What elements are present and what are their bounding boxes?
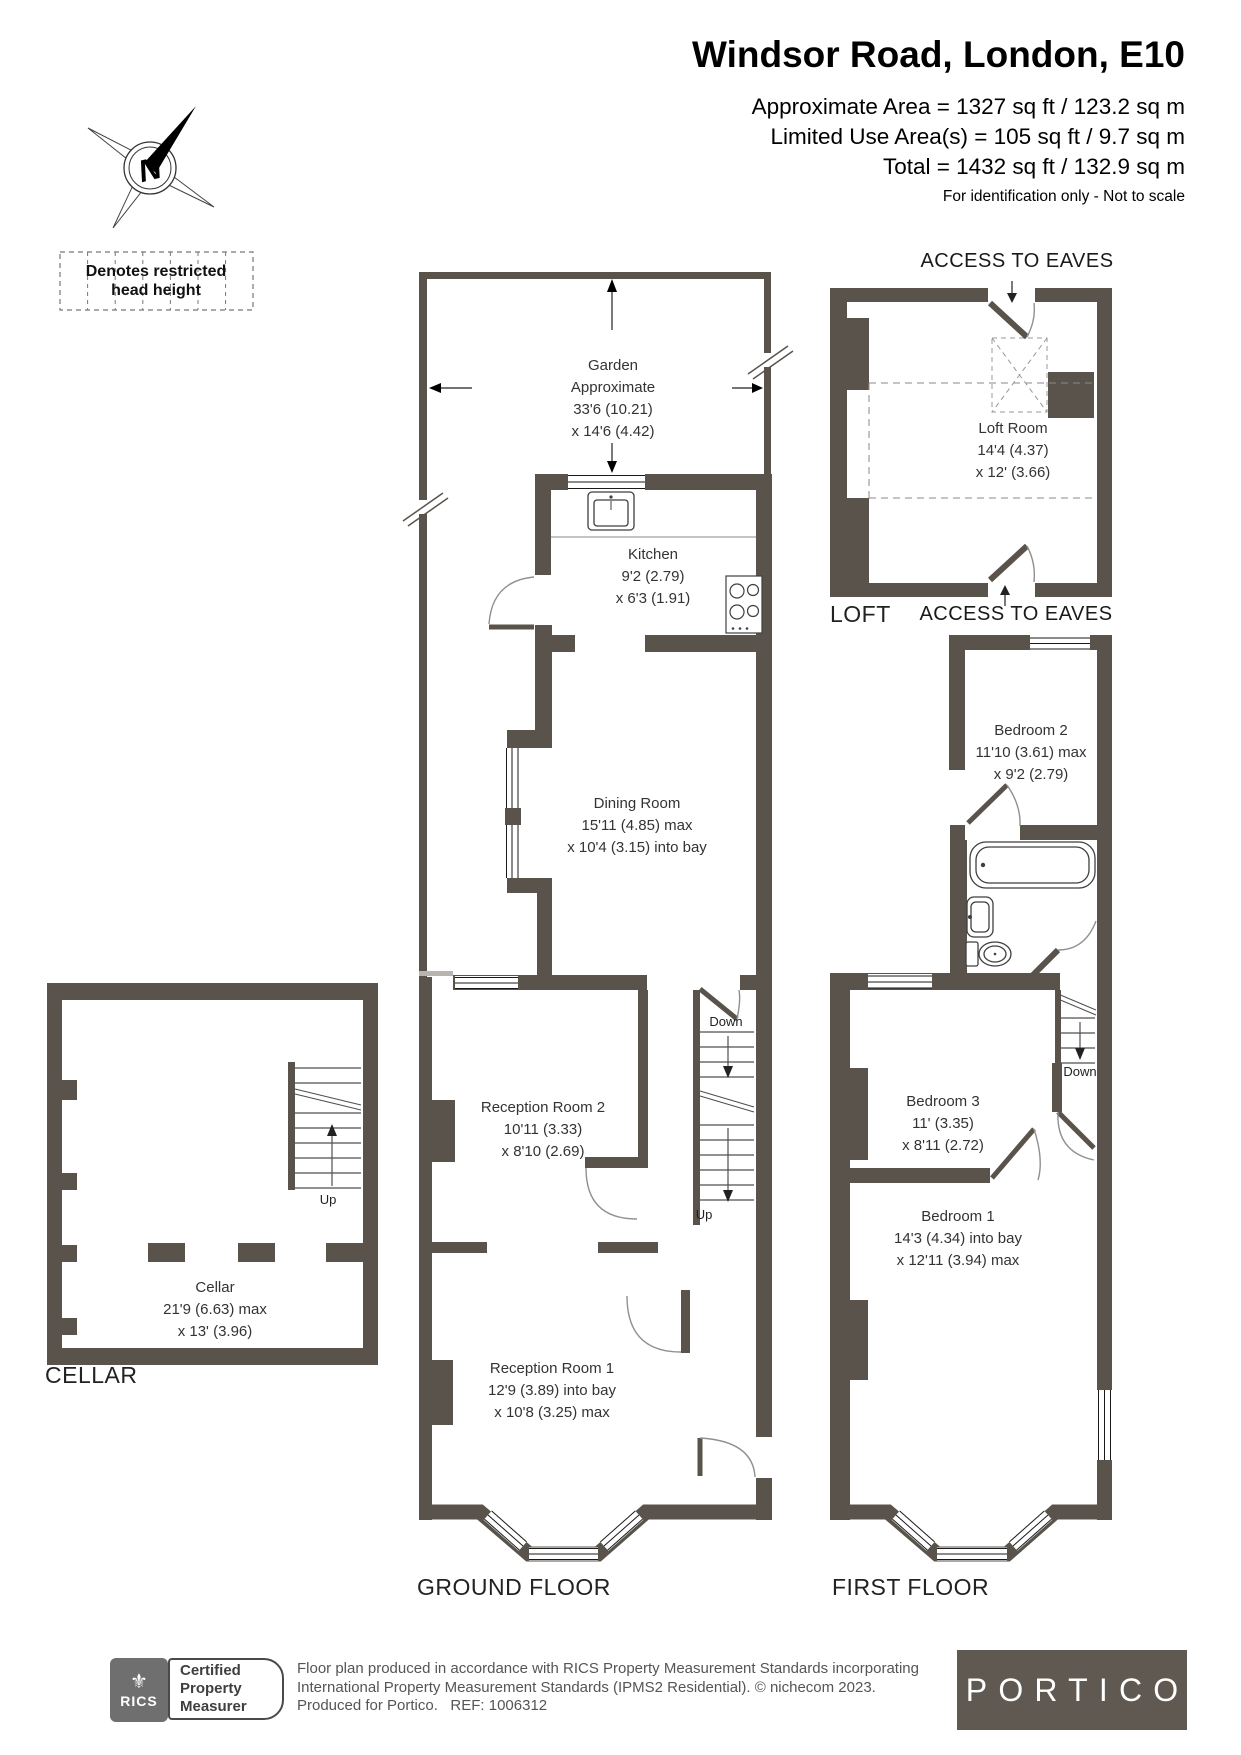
dining-name: Dining Room — [567, 793, 707, 815]
page-title: Windsor Road, London, E10 — [692, 34, 1185, 76]
legend-line-1: Denotes restricted — [86, 262, 227, 281]
reception1-dim-2: x 10'8 (3.25) max — [488, 1402, 616, 1424]
bedroom2-dim-2: x 9'2 (2.79) — [976, 764, 1087, 786]
bedroom3-window — [868, 974, 932, 988]
restricted-height-legend: Denotes restricted head height — [86, 262, 227, 300]
loft-eaves-door-bottom — [990, 546, 1034, 582]
cellar-stairs — [295, 1068, 361, 1188]
reception2-dim-2: x 8'10 (2.69) — [481, 1141, 605, 1163]
rics-logo: ⚜ RICS — [110, 1658, 168, 1722]
reception2-window — [455, 976, 518, 989]
front-door — [700, 1438, 755, 1477]
first-floor-label: FIRST FLOOR — [832, 1574, 989, 1601]
access-to-eaves-label-top: ACCESS TO EAVES — [920, 250, 1113, 273]
bedroom1-door — [1058, 1112, 1094, 1160]
loft-room-label: Loft Room 14'4 (4.37) x 12' (3.66) — [976, 418, 1051, 484]
garden-dim-1: 33'6 (10.21) — [571, 399, 655, 421]
reception1-door-arc — [627, 1296, 681, 1352]
loft-room-name: Loft Room — [976, 418, 1051, 440]
compass-icon: N — [88, 106, 214, 228]
portico-logo: PORTICO — [957, 1650, 1187, 1730]
bathtub-icon — [970, 842, 1095, 888]
disclaimer-text: Floor plan produced in accordance with R… — [297, 1660, 919, 1716]
cellar-pier — [238, 1243, 275, 1262]
ground-stairs-down-label: Down — [709, 1014, 742, 1029]
disclaimer-line-1: Floor plan produced in accordance with R… — [297, 1660, 919, 1679]
bedroom1-dim-1: 14'3 (4.34) into bay — [894, 1228, 1022, 1250]
dining-room-label: Dining Room 15'11 (4.85) max x 10'4 (3.1… — [567, 793, 707, 859]
cert-line-1: Certified — [180, 1662, 282, 1680]
kitchen-window — [568, 473, 645, 490]
first-stairs-down-label: Down — [1063, 1064, 1096, 1079]
garden-dim-2: x 14'6 (4.42) — [571, 421, 655, 443]
bedroom2-window — [1030, 636, 1090, 649]
approximate-area: Approximate Area = 1327 sq ft / 123.2 sq… — [752, 94, 1185, 120]
total-area: Total = 1432 sq ft / 132.9 sq m — [883, 154, 1185, 180]
ground-bay-windows — [484, 1511, 642, 1560]
garden-name: Garden — [571, 355, 655, 377]
reception2-door-arc — [586, 1168, 637, 1219]
kitchen-sink-icon — [588, 492, 634, 530]
kitchen-dim-1: 9'2 (2.79) — [616, 566, 691, 588]
cellar-stairs-up-label: Up — [320, 1192, 337, 1207]
kitchen-dim-2: x 6'3 (1.91) — [616, 588, 691, 610]
cellar-dim-2: x 13' (3.96) — [163, 1321, 267, 1343]
ground-stairs — [700, 1032, 754, 1200]
bedroom3-label: Bedroom 3 11' (3.35) x 8'11 (2.72) — [902, 1091, 984, 1157]
bedroom3-dim-1: 11' (3.35) — [902, 1113, 984, 1135]
reception2-label: Reception Room 2 10'11 (3.33) x 8'10 (2.… — [481, 1097, 605, 1163]
reception2-name: Reception Room 2 — [481, 1097, 605, 1119]
portico-wordmark: PORTICO — [955, 1672, 1190, 1709]
hob-icon — [726, 576, 762, 633]
reception1-dim-1: 12'9 (3.89) into bay — [488, 1380, 616, 1402]
certified-property-measurer-badge: Certified Property Measurer — [168, 1658, 284, 1720]
loft-hatch-box — [992, 338, 1047, 412]
dining-dim-1: 15'11 (4.85) max — [567, 815, 707, 837]
cellar-pier — [326, 1243, 363, 1262]
bedroom1-dim-2: x 12'11 (3.94) max — [894, 1250, 1022, 1272]
cellar-name: Cellar — [163, 1277, 267, 1299]
kitchen-label: Kitchen 9'2 (2.79) x 6'3 (1.91) — [616, 544, 691, 610]
legend-line-2: head height — [86, 281, 227, 300]
bedroom2-name: Bedroom 2 — [976, 720, 1087, 742]
loft-eaves-door-top — [990, 303, 1034, 337]
loft-plan — [830, 281, 1112, 606]
cellar-label: CELLAR — [45, 1362, 137, 1389]
garden-approx: Approximate — [571, 377, 655, 399]
ground-stairs-up-label: Up — [696, 1207, 713, 1222]
bedroom2-label: Bedroom 2 11'10 (3.61) max x 9'2 (2.79) — [976, 720, 1087, 786]
loft-room-dim-1: 14'4 (4.37) — [976, 440, 1051, 462]
bedroom1-label: Bedroom 1 14'3 (4.34) into bay x 12'11 (… — [894, 1206, 1022, 1272]
bedroom3-name: Bedroom 3 — [902, 1091, 984, 1113]
garden-label: Garden Approximate 33'6 (10.21) x 14'6 (… — [571, 355, 655, 443]
bedroom2-dim-1: 11'10 (3.61) max — [976, 742, 1087, 764]
limited-use-area: Limited Use Area(s) = 105 sq ft / 9.7 sq… — [770, 124, 1185, 150]
bedroom2-door — [968, 785, 1020, 826]
kitchen-name: Kitchen — [616, 544, 691, 566]
toilet-icon — [966, 942, 1011, 966]
basin-icon — [967, 897, 993, 937]
cellar-room-label: Cellar 21'9 (6.63) max x 13' (3.96) — [163, 1277, 267, 1343]
loft-label: LOFT — [830, 601, 891, 628]
loft-room-dim-2: x 12' (3.66) — [976, 462, 1051, 484]
floorplan-page: N — [0, 0, 1241, 1755]
disclaimer-line-2: International Property Measurement Stand… — [297, 1679, 919, 1698]
reception1-name: Reception Room 1 — [488, 1358, 616, 1380]
disclaimer-line-3: Produced for Portico. REF: 1006312 — [297, 1697, 919, 1716]
rics-lion-icon: ⚜ — [130, 1671, 148, 1693]
bedroom3-dim-2: x 8'11 (2.72) — [902, 1135, 984, 1157]
bedroom1-side-window — [1096, 1390, 1113, 1460]
ground-floor-label: GROUND FLOOR — [417, 1574, 611, 1601]
cert-line-2: Property — [180, 1680, 282, 1698]
rics-wordmark: RICS — [120, 1693, 157, 1709]
cellar-pier — [148, 1243, 185, 1262]
cellar-dim-1: 21'9 (6.63) max — [163, 1299, 267, 1321]
access-to-eaves-label-bottom: ACCESS TO EAVES — [919, 603, 1112, 626]
identification-note: For identification only - Not to scale — [943, 188, 1185, 206]
reception2-dim-1: 10'11 (3.33) — [481, 1119, 605, 1141]
loft-chimney — [1048, 372, 1094, 418]
first-bay-windows — [892, 1511, 1051, 1560]
cert-line-3: Measurer — [180, 1698, 282, 1716]
kitchen-door — [489, 577, 534, 627]
dining-dim-2: x 10'4 (3.15) into bay — [567, 837, 707, 859]
reception1-label: Reception Room 1 12'9 (3.89) into bay x … — [488, 1358, 616, 1424]
bedroom3-door — [992, 1129, 1040, 1180]
bedroom1-name: Bedroom 1 — [894, 1206, 1022, 1228]
